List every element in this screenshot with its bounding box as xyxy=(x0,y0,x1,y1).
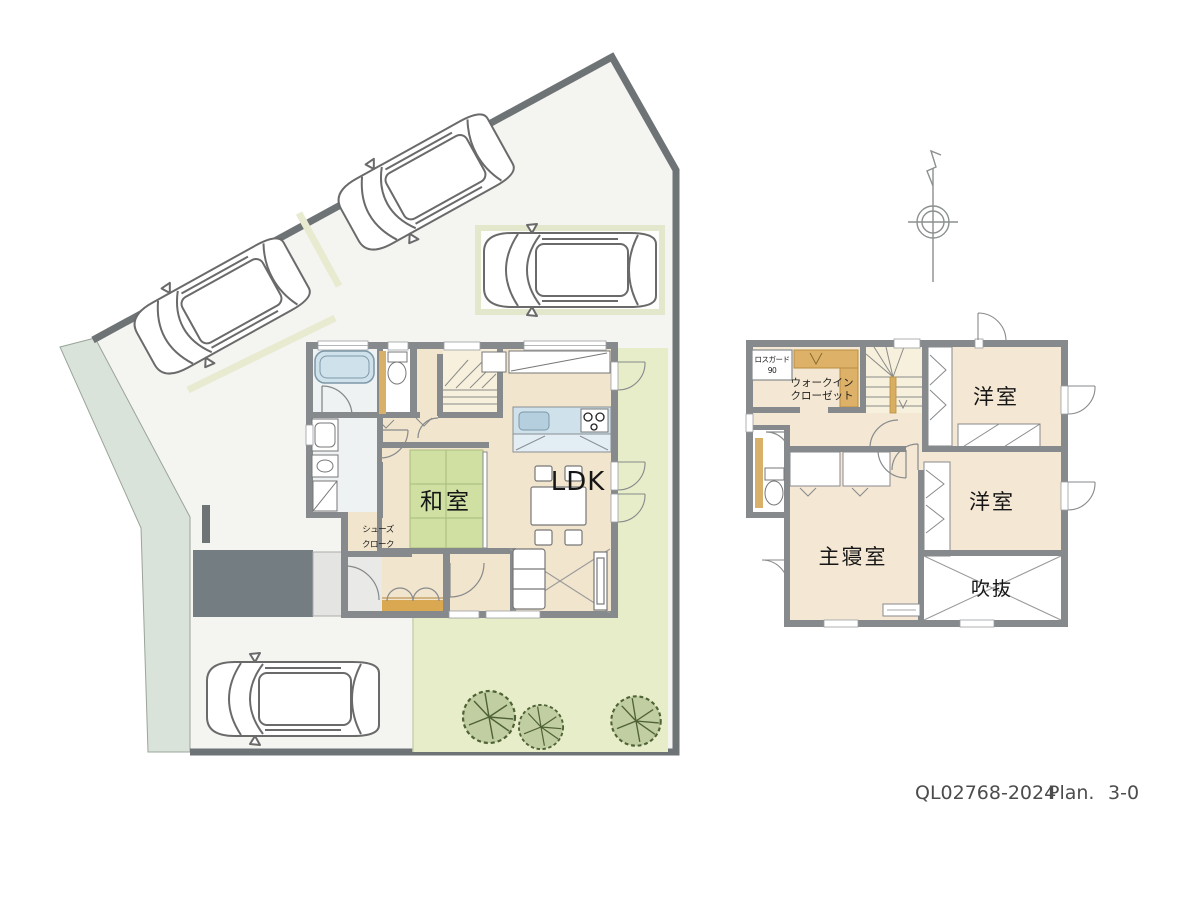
utility-pole xyxy=(202,505,210,543)
tree-icon xyxy=(463,691,515,743)
tree-icon xyxy=(519,705,563,749)
first-floor-plan: LDK 和室 シューズ クローク xyxy=(306,341,645,618)
toilet-2f-bowl xyxy=(765,481,783,505)
floor-plan-drawing: LDK 和室 シューズ クローク xyxy=(0,0,1200,900)
tree-icon xyxy=(611,696,660,745)
toilet-shelf xyxy=(379,351,386,414)
master-bedroom-label: 主寝室 xyxy=(819,545,888,569)
walk-in-closet-label-line1: ウォークイン xyxy=(791,377,854,389)
second-floor-plan: 洋室 洋室 主寝室 吹抜 ウォークイン クローゼット ロスガード 90 xyxy=(746,313,1095,627)
western-room-2-label: 洋室 xyxy=(969,490,1015,514)
western-room-1-label: 洋室 xyxy=(973,385,1019,409)
porch xyxy=(313,552,345,616)
plan-code-text: QL02768-2024Plan.3-0 xyxy=(915,782,1139,804)
toilet-bowl xyxy=(388,362,406,384)
ventilation-unit-label-line1: ロスガード xyxy=(755,354,790,364)
japanese-room-label: 和室 xyxy=(420,489,472,515)
void-label: 吹抜 xyxy=(971,578,1013,600)
washroom-fixtures xyxy=(312,419,338,511)
sofa xyxy=(513,549,545,609)
wic-shelf-top xyxy=(794,350,858,368)
stair-railing xyxy=(890,377,896,413)
shoe-closet-label-line2: クローク xyxy=(362,540,394,550)
north-compass-icon xyxy=(908,151,958,282)
entrance-vestibule xyxy=(348,557,382,611)
toilet-2f-tank xyxy=(765,468,784,480)
refrigerator xyxy=(482,352,506,372)
toilet-2f-shelf xyxy=(755,438,763,508)
floor-plan-canvas: LDK 和室 シューズ クローク xyxy=(0,0,1200,900)
kitchen-island-front xyxy=(513,434,611,452)
shoe-closet-label-line1: シューズ xyxy=(362,524,395,535)
toilet-tank xyxy=(388,352,407,362)
ldk-label: LDK xyxy=(551,467,606,497)
ventilation-unit-label-line2: 90 xyxy=(768,366,777,375)
tv-board xyxy=(594,552,607,610)
kitchen-sink xyxy=(519,412,549,430)
sliding-door xyxy=(483,452,487,548)
approach-path xyxy=(193,550,313,617)
car-icon xyxy=(484,224,656,316)
genkan-floor xyxy=(382,600,443,611)
car-icon xyxy=(207,653,379,745)
walk-in-closet-label-line2: クローゼット xyxy=(791,390,854,402)
